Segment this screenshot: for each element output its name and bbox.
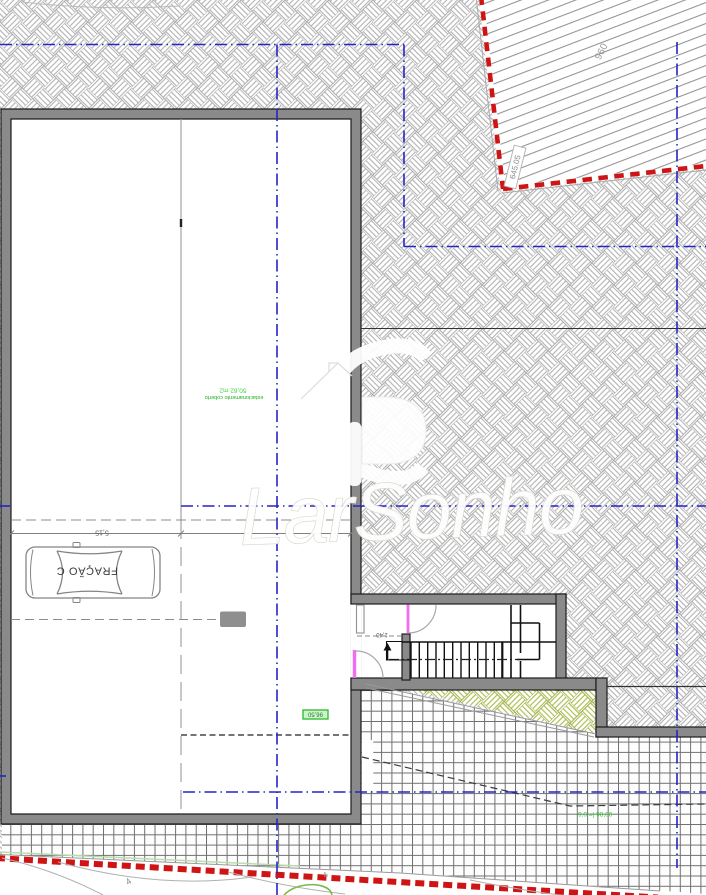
svg-text:estacionamento coberto: estacionamento coberto: [205, 394, 264, 400]
svg-text:96,50: 96,50: [307, 711, 323, 717]
svg-text:FRAÇÃO C: FRAÇÃO C: [56, 565, 118, 578]
svg-text:LarSonho: LarSonho: [237, 460, 584, 563]
svg-text:5,15: 5,15: [95, 529, 109, 536]
svg-text:1,40: 1,40: [376, 631, 388, 637]
svg-text:9,0 =| 98,00: 9,0 =| 98,00: [578, 812, 613, 819]
svg-text:50,62 m2: 50,62 m2: [219, 387, 246, 394]
